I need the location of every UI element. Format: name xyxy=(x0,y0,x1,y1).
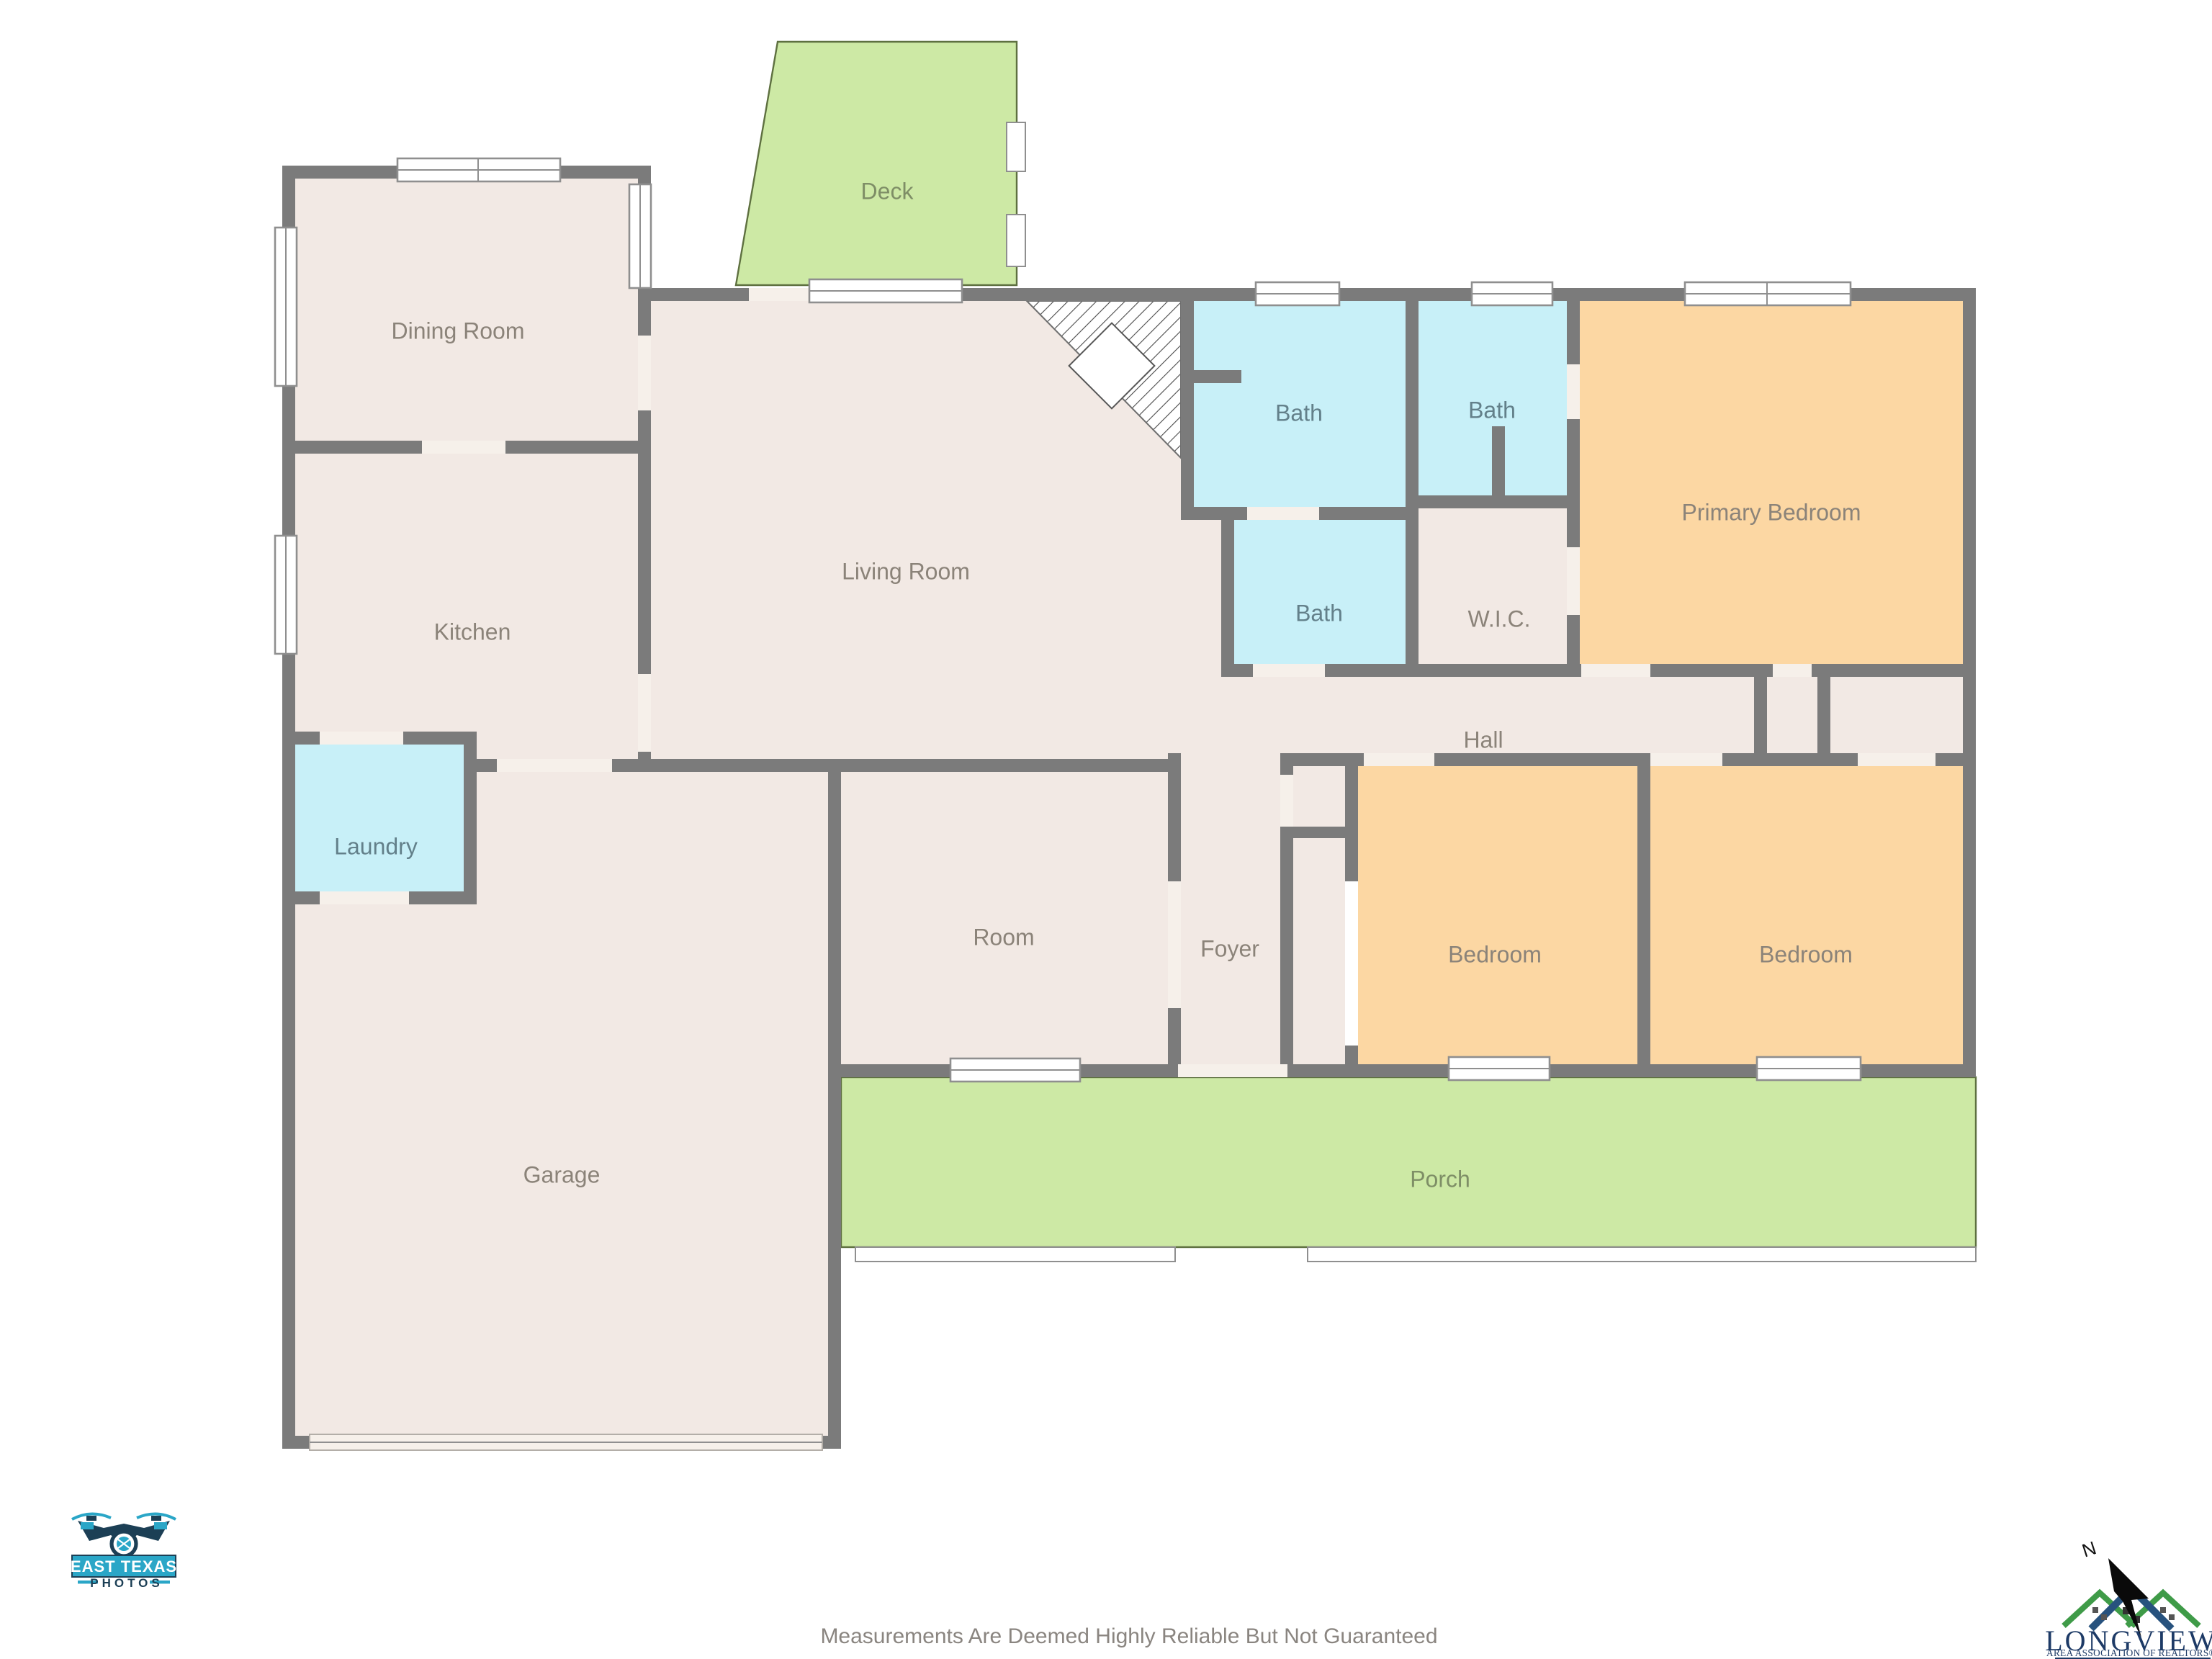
wic-floor xyxy=(1419,508,1567,664)
dining-label: Dining Room xyxy=(392,318,525,343)
association-tagline: AREA ASSOCIATION OF REALTORS® xyxy=(2046,1647,2212,1658)
hall-closet1-floor xyxy=(1767,677,1817,753)
wall xyxy=(1567,288,1580,677)
disclaimer: Measurements Are Deemed Highly Reliable … xyxy=(820,1624,1437,1648)
floor-plan-page: Dining Room Kitchen Laundry Garage Livin… xyxy=(0,0,2212,1659)
door-opening xyxy=(320,732,403,745)
roof-window xyxy=(2160,1607,2166,1613)
association-logo: N LONGVIEW AREA ASSOCIATION OF REALTORS® xyxy=(2045,1537,2212,1659)
bedroom-right-floor xyxy=(1650,766,1963,1064)
floor-plan-image: Dining Room Kitchen Laundry Garage Livin… xyxy=(0,0,2212,1659)
wic-label: W.I.C. xyxy=(1467,606,1530,631)
garage-label: Garage xyxy=(523,1161,601,1187)
wall xyxy=(1194,370,1241,383)
door-opening xyxy=(638,674,651,752)
laundry-floor xyxy=(295,745,464,891)
front-door-opening xyxy=(1178,1064,1287,1077)
primary-bedroom-floor xyxy=(1580,301,1963,664)
living-label: Living Room xyxy=(842,558,970,584)
living-pocket-floor xyxy=(1181,520,1221,753)
bedroom-left-floor xyxy=(1358,766,1637,1064)
bath3-label: Bath xyxy=(1295,600,1343,626)
wall xyxy=(1221,507,1234,677)
door-opening xyxy=(749,288,809,301)
wall xyxy=(1345,753,1358,881)
photographer-name-line1: EAST TEXAS xyxy=(71,1557,177,1575)
deck-gate xyxy=(1007,215,1025,266)
wall xyxy=(828,759,841,1449)
hall-closet2-floor xyxy=(1830,677,1963,753)
kitchen-floor xyxy=(295,454,638,759)
bath3-floor xyxy=(1234,507,1406,664)
roof-window xyxy=(2092,1607,2098,1613)
porch-railing xyxy=(1308,1247,1976,1262)
room-label: Room xyxy=(973,924,1034,950)
door-opening xyxy=(1567,547,1580,615)
room-floor xyxy=(841,772,1168,1064)
door-opening xyxy=(1773,664,1812,677)
photographer-name-line2: PHOTOS xyxy=(90,1576,163,1590)
bath1-label: Bath xyxy=(1275,400,1323,426)
door-opening xyxy=(1581,664,1650,677)
wall xyxy=(1963,288,1976,1077)
wall xyxy=(464,732,477,904)
foyer-label: Foyer xyxy=(1200,935,1259,961)
wall xyxy=(1492,426,1505,495)
door-opening xyxy=(497,759,612,772)
laundry-label: Laundry xyxy=(334,833,418,859)
wall xyxy=(1406,495,1580,508)
door-opening xyxy=(1364,753,1434,766)
porch-railing xyxy=(855,1247,1175,1262)
floors xyxy=(295,42,1976,1436)
bath2-label: Bath xyxy=(1468,397,1516,423)
dining-floor xyxy=(295,179,638,441)
deck-label: Deck xyxy=(861,178,914,204)
bedroom-closet-floor xyxy=(1293,838,1345,1064)
wall xyxy=(1345,1046,1358,1064)
wall xyxy=(1637,766,1650,1064)
door-opening xyxy=(1253,664,1325,677)
door-opening xyxy=(1567,364,1580,419)
wall xyxy=(1817,677,1830,753)
primary-bedroom-label: Primary Bedroom xyxy=(1682,499,1861,525)
door-opening xyxy=(638,336,651,410)
roof-window xyxy=(2169,1614,2175,1620)
foyer-closet-floor xyxy=(1293,766,1345,827)
porch-floor xyxy=(841,1077,1976,1247)
drone-arm-accent xyxy=(81,1522,94,1529)
door-opening xyxy=(1168,881,1181,1008)
bedroom-right-label: Bedroom xyxy=(1759,941,1853,967)
wall xyxy=(1754,677,1767,753)
compass-north-label: N xyxy=(2080,1537,2099,1561)
door-opening xyxy=(1247,507,1319,520)
drone-arm-accent xyxy=(154,1522,167,1529)
roof-window xyxy=(2101,1614,2107,1620)
hall-label: Hall xyxy=(1463,727,1503,752)
wall xyxy=(1181,301,1194,520)
drone-rotor-hub xyxy=(151,1516,161,1521)
door-opening xyxy=(1858,753,1935,766)
bedroom-left-label: Bedroom xyxy=(1448,941,1542,967)
porch-label: Porch xyxy=(1410,1166,1470,1192)
door-opening xyxy=(1650,753,1722,766)
door-opening xyxy=(1280,775,1293,827)
deck-gate xyxy=(1007,122,1025,171)
kitchen-label: Kitchen xyxy=(434,619,511,644)
wall xyxy=(1406,301,1419,677)
door-opening xyxy=(320,891,409,904)
drone-rotor-hub xyxy=(86,1516,96,1521)
deck-floor xyxy=(736,42,1017,285)
foyer-floor xyxy=(1181,753,1280,1064)
photographer-logo: EAST TEXAS PHOTOS xyxy=(71,1514,177,1590)
door-opening xyxy=(422,441,505,454)
